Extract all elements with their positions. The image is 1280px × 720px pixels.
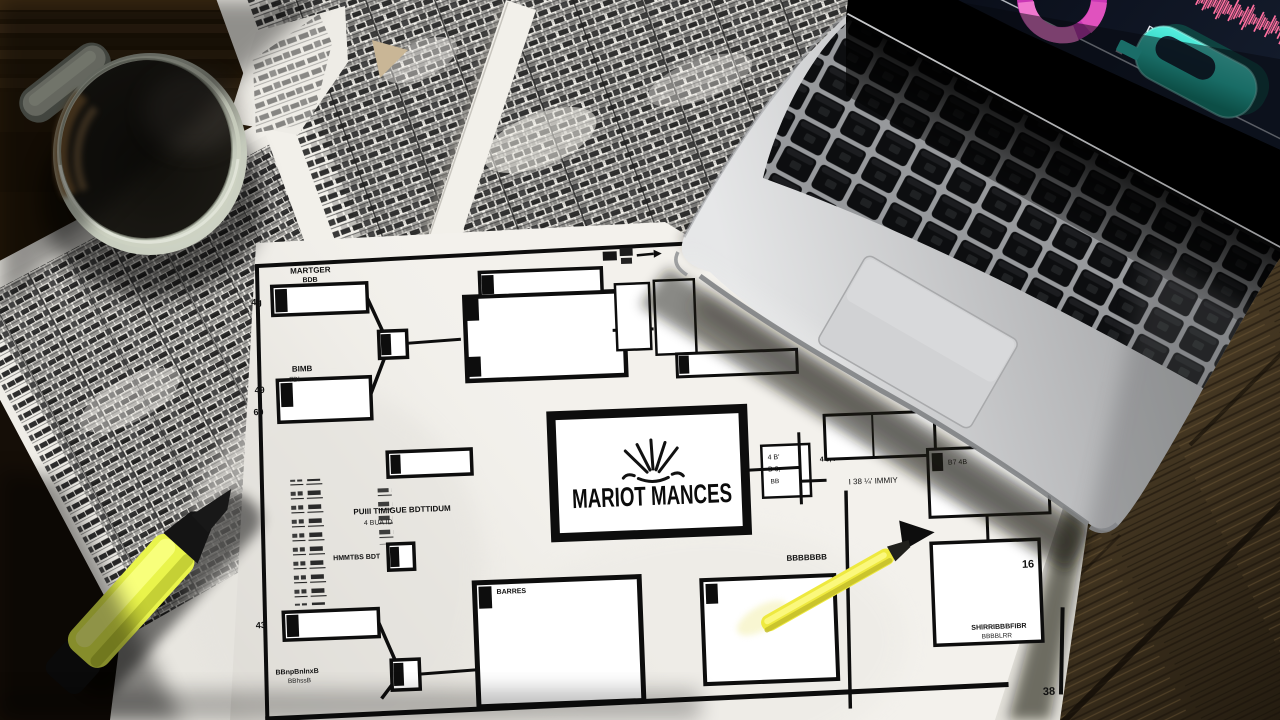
svg-text:43: 43 [256,620,266,630]
svg-text:BARRES: BARRES [496,588,526,596]
svg-text:BBBBBBB: BBBBBBB [786,552,827,563]
svg-text:BBhssB: BBhssB [288,677,311,685]
svg-text:4 BUA ID: 4 BUA ID [364,519,393,527]
svg-text:49: 49 [254,385,264,395]
svg-text:60: 60 [253,407,263,417]
svg-text:7BI: 7BI [289,376,300,383]
svg-text:38: 38 [1043,686,1056,698]
svg-text:4g: 4g [251,297,262,307]
svg-text:16: 16 [1022,558,1035,570]
svg-text:4 B': 4 B' [768,454,780,461]
svg-text:BIMB: BIMB [292,364,313,374]
svg-text:MARTGER: MARTGER [290,265,331,276]
svg-text:BB: BB [770,478,779,485]
svg-text:BBBBLRR: BBBBLRR [982,632,1013,640]
svg-text:MARIOT MANCES: MARIOT MANCES [572,478,733,514]
svg-text:I 38 ¼' IMMIY: I 38 ¼' IMMIY [848,476,898,487]
